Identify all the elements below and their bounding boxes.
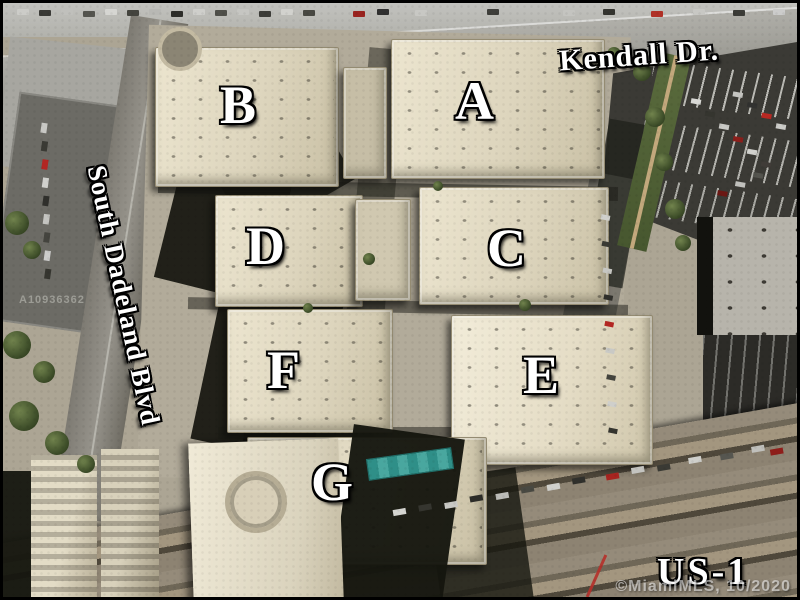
- parked-cars-row: [17, 9, 29, 15]
- tree: [33, 361, 55, 383]
- tree: [433, 181, 443, 191]
- watermark-credit: ©MiamiMLS, 10/2020: [615, 578, 791, 596]
- tower-roof: [101, 449, 159, 600]
- tree: [5, 211, 29, 235]
- rotunda-roof: [225, 471, 287, 533]
- tree: [665, 199, 685, 219]
- tree: [363, 253, 375, 265]
- rotunda-roof: [158, 27, 202, 71]
- tower-roof: [31, 455, 97, 600]
- building-marker-g: G: [311, 455, 353, 509]
- tree: [303, 303, 313, 313]
- tree: [23, 241, 41, 259]
- watermark-mls-id: A10936362: [19, 294, 85, 306]
- aerial-photo: Kendall Dr. South Dadeland Blvd US-1 B A…: [0, 0, 800, 600]
- building-roof-right-edge: [713, 217, 800, 335]
- infill-structure: [355, 199, 411, 301]
- building-marker-f: F: [267, 343, 300, 397]
- building-marker-a: A: [455, 74, 494, 128]
- tree: [675, 235, 691, 251]
- building-marker-b: B: [220, 78, 256, 132]
- tree: [77, 455, 95, 473]
- tree: [519, 299, 531, 311]
- tree: [655, 153, 673, 171]
- building-f-roof: [227, 309, 393, 433]
- tree: [645, 107, 665, 127]
- infill-structure: [343, 67, 387, 179]
- building-marker-e: E: [523, 348, 559, 402]
- shadow-strip: [697, 217, 713, 335]
- building-marker-c: C: [487, 221, 526, 275]
- building-d-roof: [215, 195, 363, 307]
- tree: [3, 331, 31, 359]
- tree: [9, 401, 39, 431]
- tree: [45, 431, 69, 455]
- roof-vents: [220, 200, 358, 302]
- roof-vents: [232, 314, 388, 428]
- building-marker-d: D: [246, 219, 285, 273]
